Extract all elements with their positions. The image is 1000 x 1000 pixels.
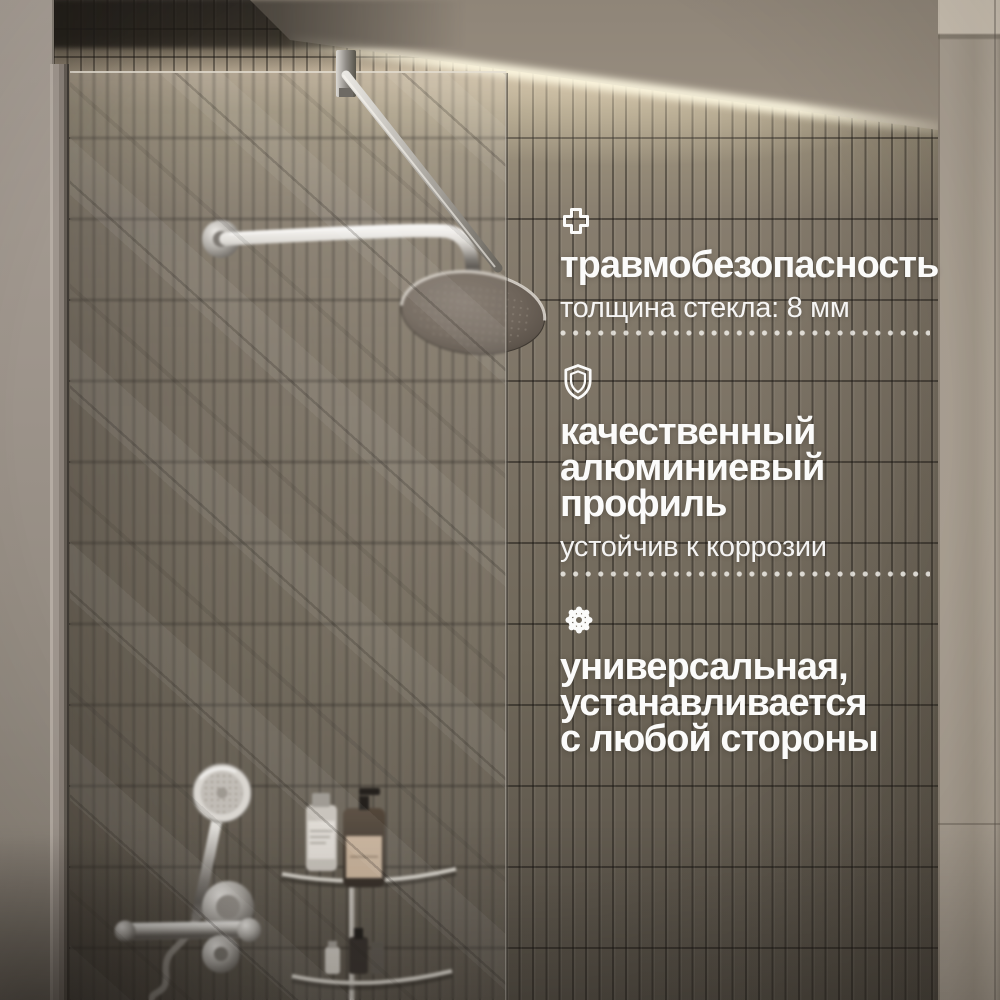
gear-icon [560,601,878,639]
shield-icon [560,362,827,404]
feature-subtitle: толщина стекла: 8 мм [560,291,938,325]
feature-universal: универсальная, устанавливается с любой с… [560,601,878,757]
feature-title: травмобезопасность [560,247,938,283]
feature-safety: травмобезопасность толщина стекла: 8 мм [560,205,938,325]
feature-subtitle: устойчив к коррозии [560,530,827,564]
bathroom-shower-photo: травмобезопасность толщина стекла: 8 мм … [0,0,1000,1000]
feature-title: качественный алюминиевый профиль [560,414,827,522]
dotted-divider [560,571,930,577]
feature-profile: качественный алюминиевый профиль устойчи… [560,362,827,564]
feature-title: универсальная, устанавливается с любой с… [560,649,878,757]
plus-icon [560,205,938,237]
dotted-divider [560,330,930,336]
feature-list: травмобезопасность толщина стекла: 8 мм … [0,0,1000,1000]
